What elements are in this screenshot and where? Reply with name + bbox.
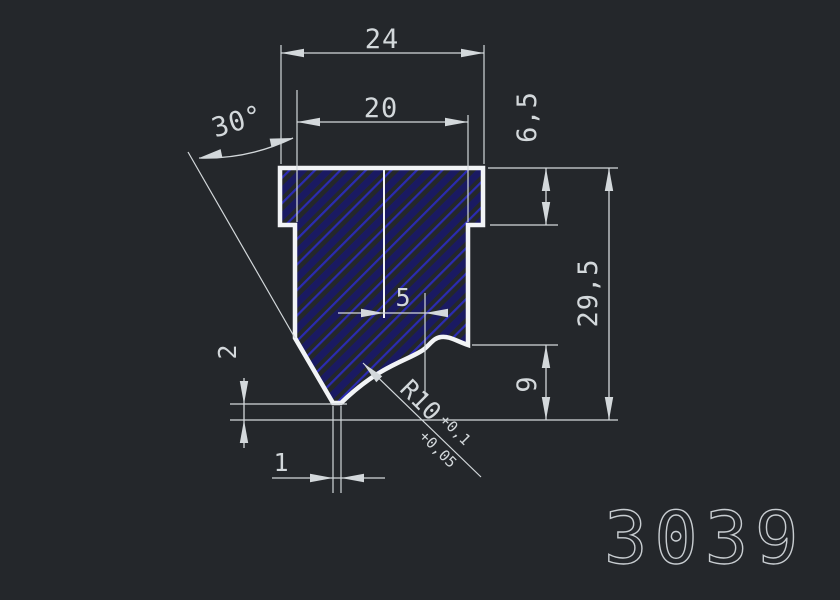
dim-value-tip-width: 1 bbox=[273, 448, 288, 477]
dim-value-total-height: 29,5 bbox=[573, 258, 604, 327]
arrowhead-icon bbox=[297, 118, 320, 126]
part-number: 3039 bbox=[604, 496, 805, 580]
arrowhead-icon bbox=[445, 118, 468, 126]
arrowhead-icon bbox=[542, 345, 550, 368]
arrowhead-icon bbox=[270, 134, 294, 147]
arrowhead-icon bbox=[240, 420, 248, 443]
dim-tip-width: 1 bbox=[272, 406, 385, 493]
profile-section bbox=[280, 168, 483, 403]
dim-value-outer-width: 24 bbox=[365, 24, 400, 55]
dim-flange-height: 6,5 bbox=[488, 91, 618, 225]
arrowhead-icon bbox=[542, 397, 550, 420]
dim-radius: R10 +0,1 +0,05 bbox=[360, 360, 481, 477]
profile-outline bbox=[280, 168, 483, 403]
dim-right-height: 9 bbox=[472, 345, 558, 420]
dim-value-angle: 30° bbox=[208, 99, 267, 144]
dim-value-flange-height: 6,5 bbox=[512, 91, 543, 143]
dim-value-right-height: 9 bbox=[512, 375, 543, 392]
dim-value-tip-offset: 5 bbox=[395, 283, 410, 312]
arrowhead-icon bbox=[461, 49, 484, 57]
arrowhead-icon bbox=[605, 397, 613, 420]
arrowhead-icon bbox=[542, 202, 550, 225]
dim-value-radius: R10 bbox=[394, 374, 446, 426]
dim-value-tip-height: 2 bbox=[213, 344, 242, 359]
arrowhead-icon bbox=[310, 474, 333, 482]
arrowhead-icon bbox=[605, 168, 613, 191]
arrowhead-icon bbox=[281, 49, 304, 57]
arrowhead-icon bbox=[341, 474, 364, 482]
arrowhead-icon bbox=[198, 149, 222, 162]
arrowhead-icon bbox=[542, 168, 550, 191]
arrowhead-icon bbox=[240, 381, 248, 404]
dim-value-inner-width: 20 bbox=[364, 93, 399, 124]
cad-drawing-canvas: 24 20 6,5 29,5 9 5 bbox=[0, 0, 840, 600]
